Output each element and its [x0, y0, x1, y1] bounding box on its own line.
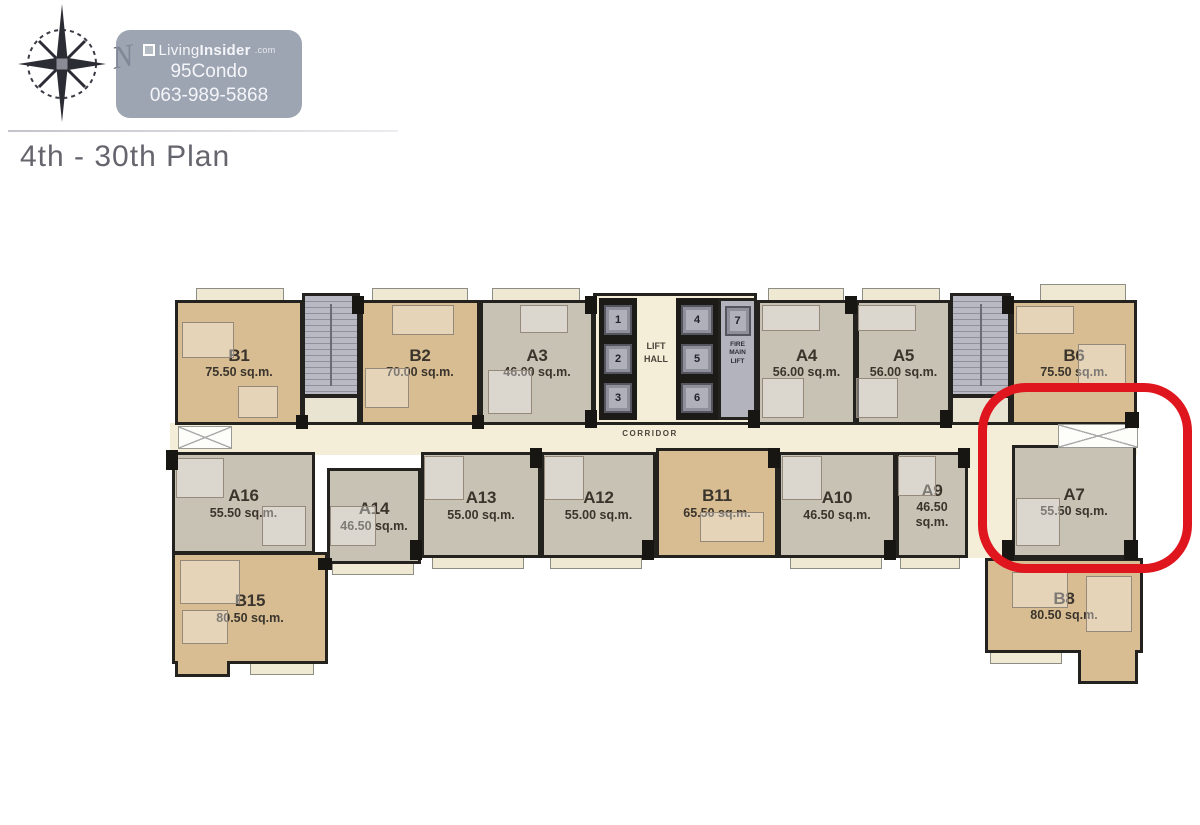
furniture: [330, 506, 376, 546]
unit-name: A4: [773, 346, 840, 366]
brand-suffix: .com: [255, 45, 276, 55]
page-title: 4th - 30th Plan: [20, 140, 230, 174]
watermark-project: 95Condo: [170, 61, 247, 83]
lift-5: 5: [681, 344, 713, 374]
unit-area: 46.50 sq.m.: [899, 500, 965, 529]
unit-name: A3: [503, 346, 570, 366]
brand-light: Living: [159, 42, 200, 59]
furniture: [176, 458, 224, 498]
compass-rose-icon: [6, 4, 118, 122]
furniture: [365, 368, 409, 408]
corridor-label: CORRIDOR: [600, 429, 700, 438]
furniture: [392, 305, 454, 335]
column: [768, 448, 780, 468]
watermark-badge: LivingInsider .com 95Condo 063-989-5868: [116, 30, 302, 118]
column: [1002, 296, 1014, 314]
column: [296, 415, 308, 429]
unit-area: 75.50 sq.m.: [205, 365, 272, 379]
column: [585, 296, 597, 314]
furniture: [1012, 572, 1068, 608]
column: [748, 410, 760, 428]
column: [530, 448, 542, 468]
furniture: [898, 456, 936, 496]
furniture: [180, 560, 240, 604]
unit-B8-extension: [1078, 650, 1138, 684]
column: [845, 296, 857, 314]
brand-name: LivingInsider: [159, 42, 251, 59]
furniture: [856, 378, 898, 418]
furniture: [782, 456, 822, 500]
furniture: [762, 378, 804, 418]
unit-area: 55.00 sq.m.: [565, 508, 632, 522]
lift-hall-label: LIFT HALL: [636, 340, 676, 365]
furniture: [424, 456, 464, 500]
watermark-brand-line: LivingInsider .com: [143, 42, 276, 59]
void-hatch-west: [178, 426, 232, 449]
furniture: [182, 322, 234, 358]
column: [642, 540, 654, 560]
column: [352, 296, 364, 314]
furniture: [182, 610, 228, 644]
fire-lift-column: 7 FIRE MAIN LIFT: [718, 298, 757, 420]
furniture: [262, 506, 306, 546]
column: [585, 410, 597, 428]
furniture: [1078, 344, 1126, 388]
furniture: [544, 456, 584, 500]
column: [410, 540, 422, 560]
unit-B15-extension: [175, 661, 230, 677]
furniture: [520, 305, 568, 333]
lift-6: 6: [681, 383, 713, 413]
furniture: [858, 305, 916, 331]
lift-4: 4: [681, 305, 713, 335]
column: [166, 450, 178, 470]
cube-logo-icon: [143, 44, 155, 56]
lift-3: 3: [604, 383, 632, 413]
fire-lift-label: FIRE MAIN LIFT: [725, 341, 751, 366]
furniture: [1086, 576, 1132, 632]
unit-name: A5: [870, 346, 937, 366]
unit-area: 46.50 sq.m.: [803, 508, 870, 522]
highlight-ring: [978, 383, 1192, 573]
furniture: [488, 370, 532, 414]
furniture: [238, 386, 278, 418]
lift-bank-east: 4 5 6: [676, 298, 718, 420]
lift-bank-west: 1 2 3: [599, 298, 637, 420]
watermark-phone: 063-989-5868: [150, 85, 268, 107]
unit-name: B11: [683, 486, 750, 506]
column: [958, 448, 970, 468]
furniture: [762, 305, 820, 331]
utility-room: [302, 395, 360, 425]
furniture: [700, 512, 764, 542]
lift-1: 1: [604, 305, 632, 335]
unit-area: 55.00 sq.m.: [447, 508, 514, 522]
floor-plan-page: N LivingInsider .com 95Condo 063-989-586…: [0, 0, 1200, 825]
lift-2: 2: [604, 344, 632, 374]
header-divider: [8, 130, 398, 132]
column: [884, 540, 896, 560]
column: [940, 410, 952, 428]
column: [472, 415, 484, 429]
furniture: [1016, 306, 1074, 334]
lift-7: 7: [725, 306, 751, 336]
column: [318, 558, 332, 570]
unit-name: B2: [386, 346, 453, 366]
brand-bold: Insider: [200, 42, 251, 59]
